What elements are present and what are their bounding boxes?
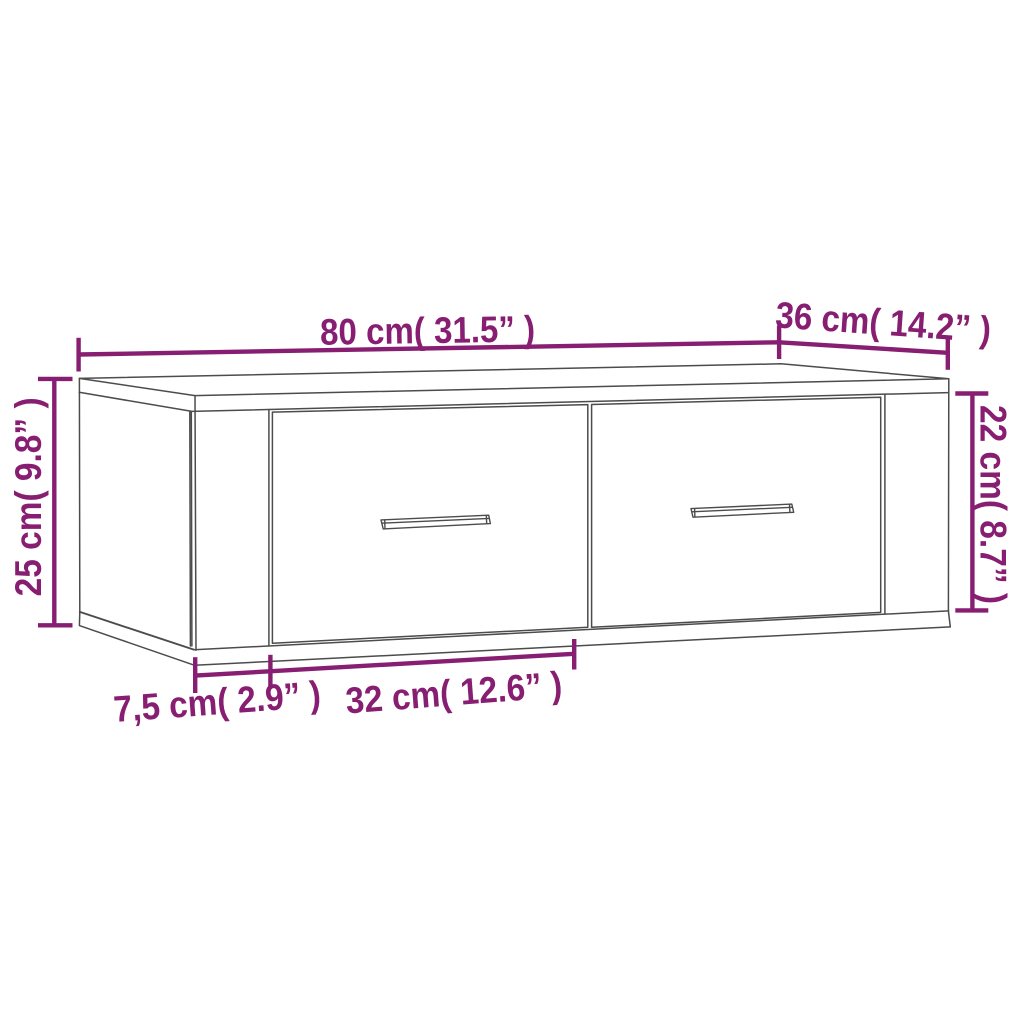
svg-text:22 cm( 8.7” ): 22 cm( 8.7” ) bbox=[972, 405, 1013, 604]
svg-text:80 cm( 31.5” ): 80 cm( 31.5” ) bbox=[320, 308, 536, 352]
svg-text:25 cm( 9.8” ): 25 cm( 9.8” ) bbox=[8, 397, 49, 596]
